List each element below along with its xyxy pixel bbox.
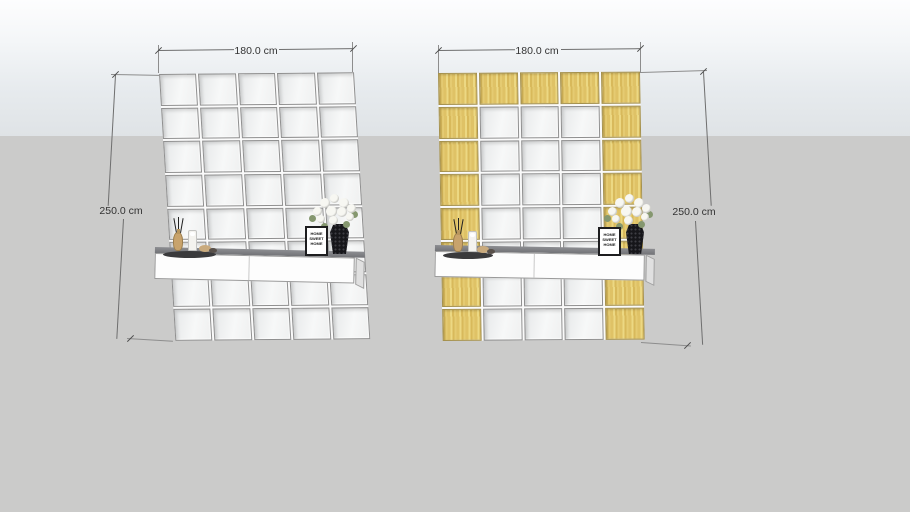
flower (625, 194, 634, 203)
flower-vase (626, 224, 644, 254)
tile-mirror (200, 107, 239, 139)
decor-flower-group: HOME SWEET HOME (598, 193, 658, 257)
tile-mirror (281, 140, 320, 172)
tile-mirror (521, 173, 560, 205)
flower (330, 194, 339, 203)
tile-mirror (279, 106, 318, 138)
flower-vase (330, 224, 349, 254)
flower (642, 204, 651, 213)
tile-mirror (520, 106, 559, 138)
flower (317, 215, 325, 223)
tile-mirror (321, 140, 360, 172)
diffuser-bottle (173, 232, 183, 251)
tile-mirror (159, 74, 198, 106)
tile-mirror (242, 140, 281, 172)
tile-mirror (198, 73, 237, 105)
flower (329, 216, 338, 225)
flower (612, 215, 620, 223)
tile-mirror (252, 308, 291, 340)
candle (188, 230, 197, 251)
tile-mirror (246, 207, 285, 239)
decor-tray-group (163, 215, 219, 261)
tile-wood (440, 174, 479, 206)
shelf-drawer-divider (248, 256, 250, 280)
tile-mirror (292, 308, 331, 340)
flower (624, 216, 633, 225)
tile-wood (439, 106, 478, 138)
leaf (309, 215, 316, 222)
tile-mirror (562, 173, 601, 205)
diffuser-bottle (453, 233, 463, 252)
tile-mirror (481, 174, 520, 206)
tile-wood (601, 72, 640, 104)
flower (641, 213, 649, 221)
tile-mirror (165, 174, 204, 206)
tile-mirror (244, 174, 283, 206)
tile-wood (602, 139, 641, 171)
tile-wood (602, 105, 641, 137)
dimension-label-width-right: 180.0 cm (514, 45, 560, 57)
tile-mirror (565, 308, 604, 340)
tile-mirror (317, 72, 356, 104)
tile-wood (438, 73, 477, 105)
tile-mirror (205, 174, 244, 206)
shelf-drawer-divider (533, 254, 534, 278)
decor-flower-group: HOME SWEET HOME (305, 193, 365, 257)
dimension-label-height-right: 250.0 cm (672, 206, 716, 218)
candle (468, 231, 477, 252)
tile-mirror (277, 73, 316, 105)
tray (443, 252, 493, 259)
decor-tray-group (443, 216, 499, 262)
tile-mirror (331, 308, 370, 340)
tile-wood (560, 72, 599, 104)
tile-mirror (163, 141, 202, 173)
tile-mirror (238, 73, 277, 105)
flower (346, 213, 354, 221)
tile-mirror (563, 207, 602, 239)
tile-mirror (483, 309, 522, 341)
shelf-side-face (645, 255, 654, 286)
tile-mirror (161, 107, 200, 139)
flower (347, 204, 356, 213)
tile-mirror (480, 140, 519, 172)
tile-mirror (522, 207, 561, 239)
tile-mirror (561, 106, 600, 138)
leaf (343, 221, 350, 228)
diffuser-stick (460, 219, 464, 234)
tile-wood (520, 72, 559, 104)
tray (163, 251, 216, 258)
sign-text: HOME (601, 242, 618, 247)
framed-sign: HOME SWEET HOME (305, 226, 328, 256)
tile-wood (605, 308, 644, 340)
leaf (638, 221, 645, 228)
tile-mirror (203, 141, 242, 173)
tile-mirror (319, 106, 358, 138)
bowl (209, 248, 217, 253)
tile-mirror (562, 139, 601, 171)
diffuser-stick (180, 218, 184, 233)
tile-mirror (479, 106, 518, 138)
tile-wood (442, 309, 481, 341)
bowl (487, 249, 495, 254)
tile-mirror (240, 107, 279, 139)
tile-mirror (213, 309, 252, 341)
tile-wood (439, 140, 478, 172)
leaf (604, 215, 611, 222)
dimension-label-height-left: 250.0 cm (99, 205, 143, 217)
shelf-side-face (355, 258, 365, 289)
tile-mirror (521, 140, 560, 172)
tile-mirror (173, 309, 212, 341)
dimension-label-width-left: 180.0 cm (232, 45, 280, 57)
model-viewport[interactable]: HOME SWEET HOME HOME SWEET (0, 0, 910, 512)
tile-wood (479, 72, 518, 104)
sign-text: HOME (308, 241, 325, 246)
tile-mirror (524, 308, 563, 340)
framed-sign: HOME SWEET HOME (598, 227, 621, 256)
